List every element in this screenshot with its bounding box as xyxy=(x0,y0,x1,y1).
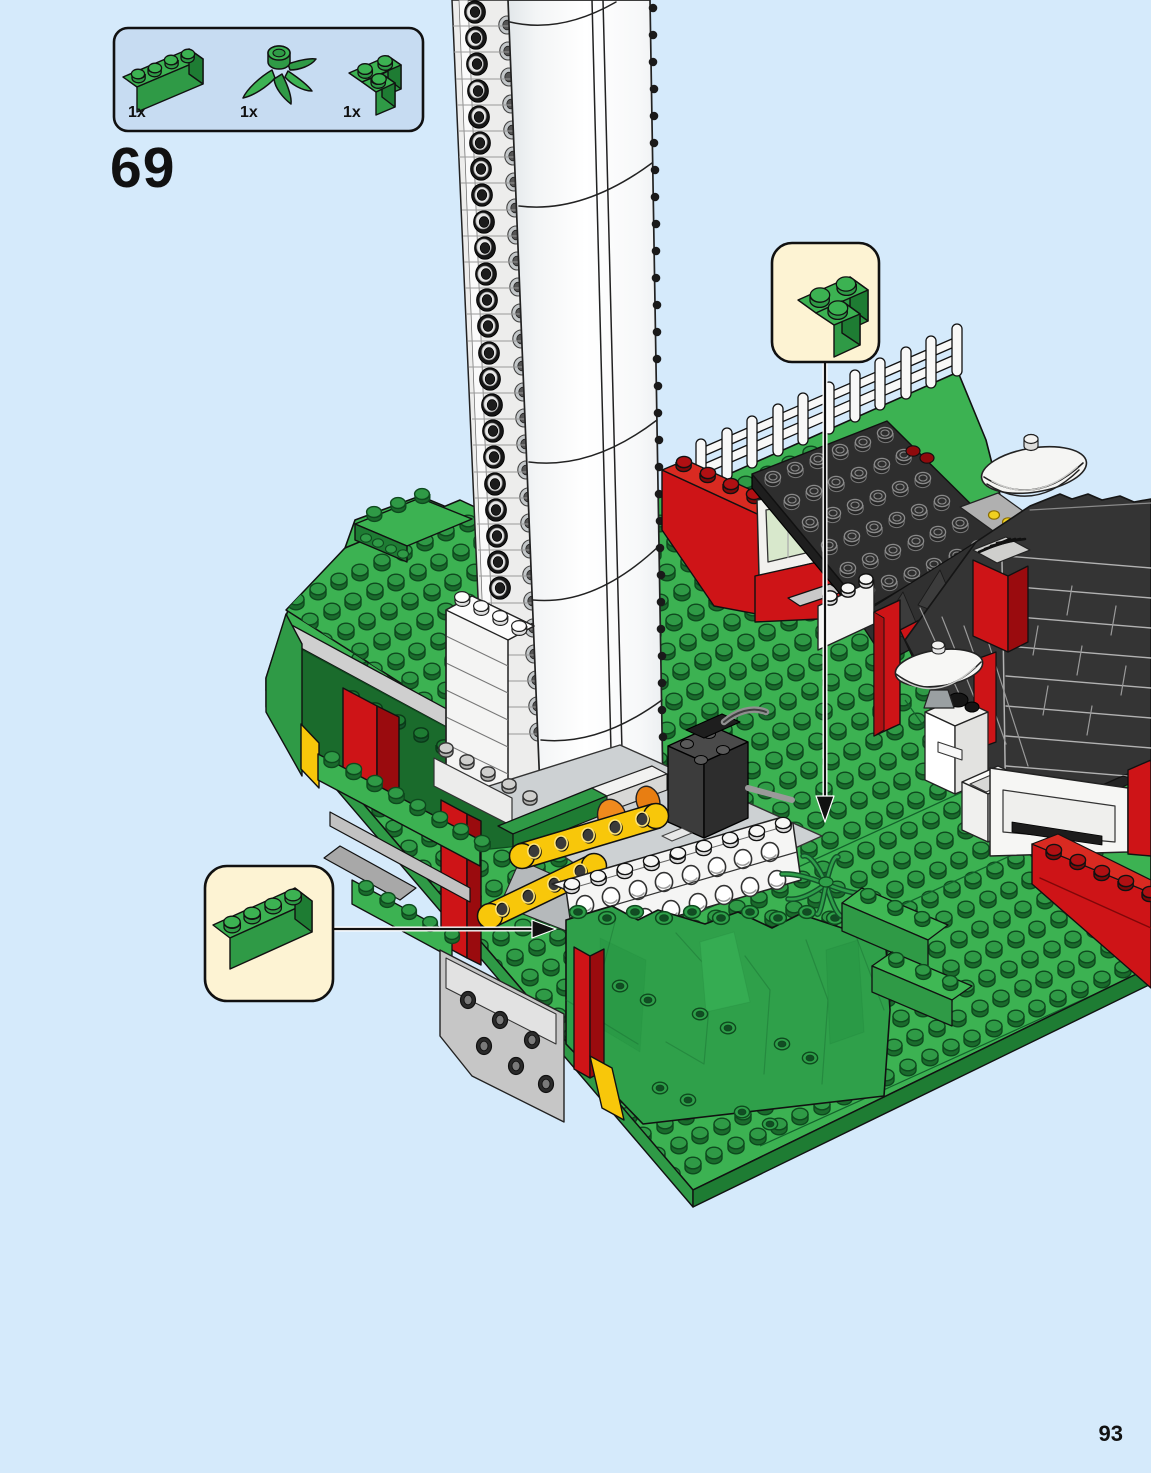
svg-text:69: 69 xyxy=(110,136,175,200)
svg-text:1x: 1x xyxy=(128,104,146,121)
svg-text:93: 93 xyxy=(1099,1421,1123,1446)
svg-text:1x: 1x xyxy=(240,104,258,121)
svg-text:1x: 1x xyxy=(343,104,361,121)
